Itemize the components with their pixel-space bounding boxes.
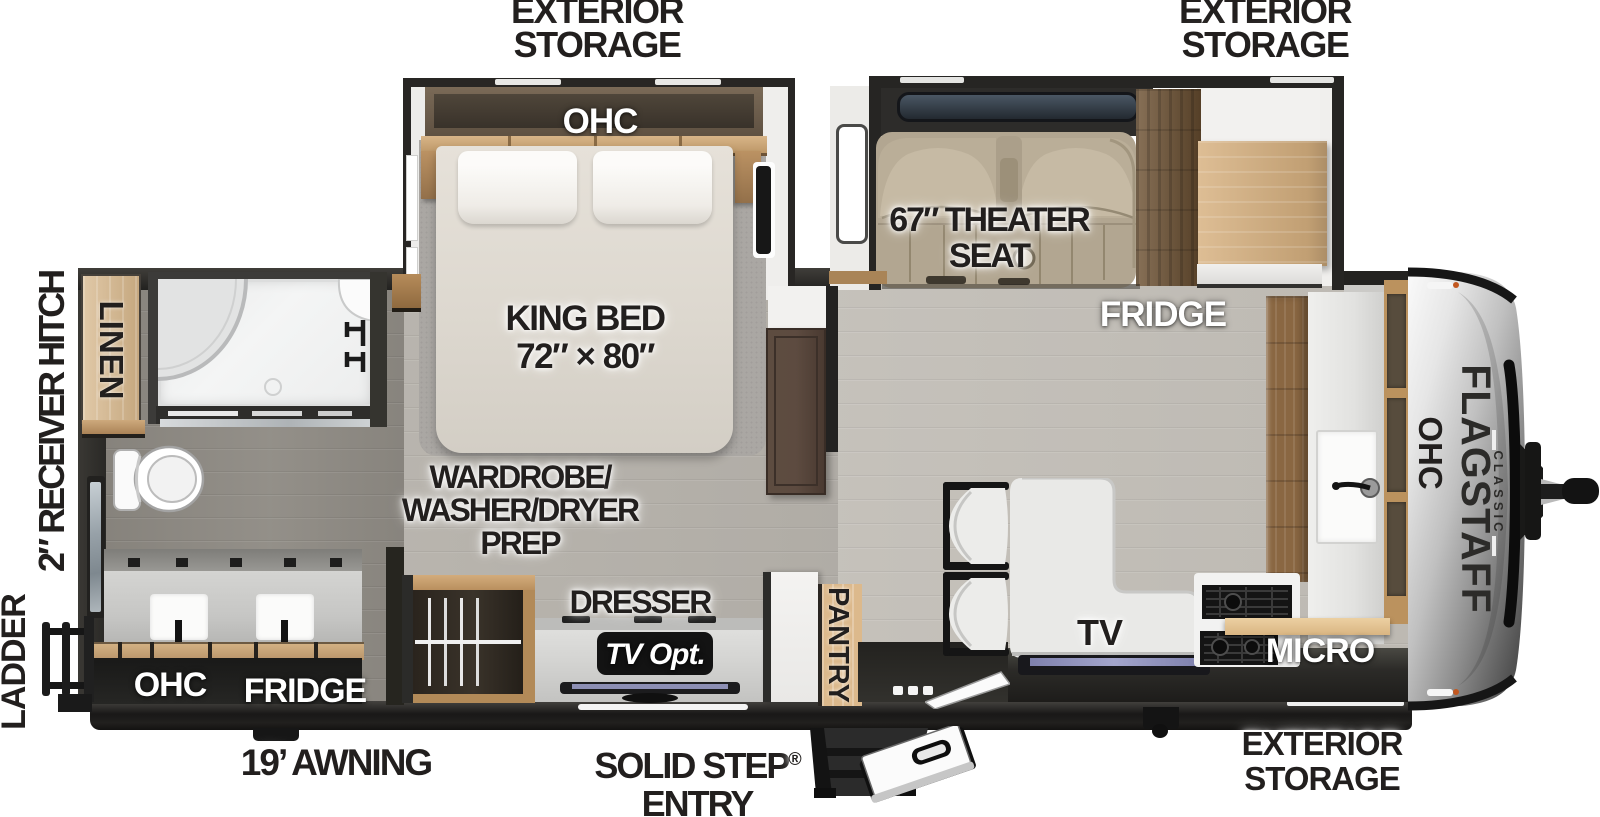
svg-text:CLASSIC: CLASSIC [1491,450,1506,535]
